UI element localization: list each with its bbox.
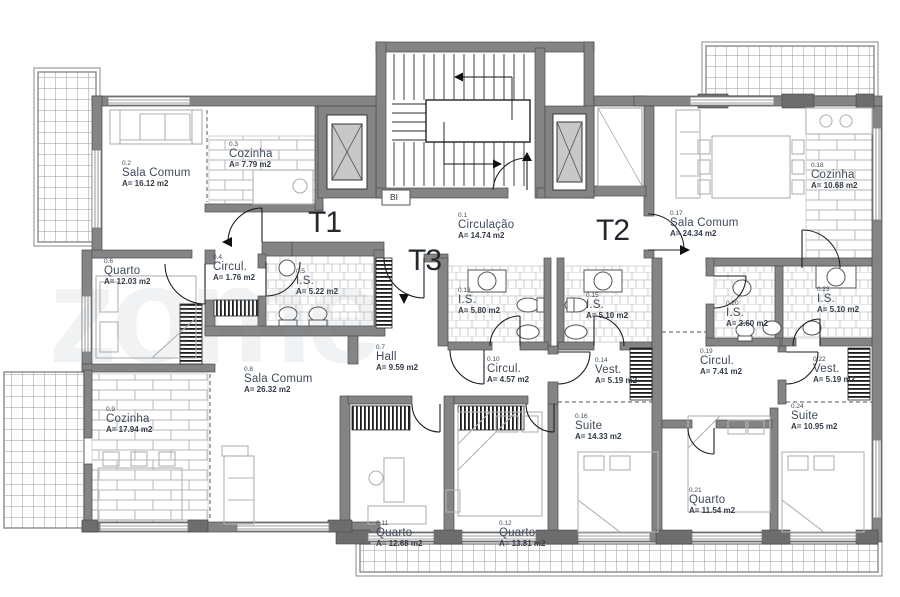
floor-plan: T1 T2 T3 BI 0.1 Circulação A= 14.74 m2 0… xyxy=(0,0,900,597)
room-number: 0.12 xyxy=(499,520,545,527)
room-number: 0.21 xyxy=(689,487,735,494)
room-area: A= 26.32 m2 xyxy=(244,386,312,395)
apartment-label-t3: T3 xyxy=(408,244,441,278)
room-area: A= 5.10 m2 xyxy=(817,306,859,315)
window xyxy=(100,523,188,531)
room-area: A= 7.79 m2 xyxy=(229,161,273,170)
room-label-0-24: 0.24 Suite A= 10.95 m2 xyxy=(791,403,837,432)
wardrobe xyxy=(180,304,202,364)
arrow-t3 xyxy=(399,294,409,304)
room-label-0-14: 0.14 Vest. A= 5.19 m2 xyxy=(595,357,637,386)
room-label-0-19: 0.19 Circul. A= 7.41 m2 xyxy=(700,348,742,377)
door-t1-entry xyxy=(228,208,262,242)
window xyxy=(692,533,762,541)
room-area: A= 10.95 m2 xyxy=(791,423,837,432)
room-number: 0.23 xyxy=(817,286,859,293)
room-number: 0.8 xyxy=(244,366,312,373)
terrace-top-right xyxy=(706,46,874,96)
room-area: A= 4.57 m2 xyxy=(487,376,529,385)
window xyxy=(92,150,101,228)
room-label-0-12: 0.12 Quarto A= 13.81 m2 xyxy=(499,520,545,549)
room-area: A= 7.41 m2 xyxy=(700,368,742,377)
wardrobe xyxy=(214,300,258,316)
door-vest-0-14 xyxy=(558,352,590,384)
door-quarto-0-21 xyxy=(688,428,714,454)
shaft-void xyxy=(598,108,642,186)
room-number: 0.3 xyxy=(229,141,273,148)
room-number: 0.15 xyxy=(586,292,628,299)
room-label-0-1: 0.1 Circulação A= 14.74 m2 xyxy=(458,212,514,241)
bed-suite-0-16 xyxy=(578,452,658,532)
sofa-sala-0-17 xyxy=(676,110,700,198)
room-area: A= 13.81 m2 xyxy=(499,540,545,549)
room-label-0-11: 0.11 Quarto A= 12.68 m2 xyxy=(376,520,422,549)
elevator-right xyxy=(545,106,594,198)
room-number: 0.13 xyxy=(458,287,500,294)
room-number: 0.17 xyxy=(670,210,738,217)
room-area: A= 16.12 m2 xyxy=(122,180,190,189)
window xyxy=(873,440,881,518)
room-number: 0.19 xyxy=(700,348,742,355)
terrace-top-left xyxy=(38,72,96,242)
wardrobe xyxy=(352,406,410,430)
room-label-0-3: 0.3 Cozinha A= 7.79 m2 xyxy=(229,141,273,170)
room-area: A= 3.60 m2 xyxy=(726,320,768,329)
room-label-0-23: 0.23 I.S. A= 5.10 m2 xyxy=(817,286,859,315)
room-area: A= 5.19 m2 xyxy=(813,376,855,385)
stair-arrow-down xyxy=(493,160,502,169)
room-area: A= 24.34 m2 xyxy=(670,230,738,239)
arrow-t2 xyxy=(680,245,690,255)
window xyxy=(578,533,650,541)
room-number: 0.18 xyxy=(811,162,857,169)
room-number: 0.10 xyxy=(487,356,529,363)
room-area: A= 12.03 m2 xyxy=(104,278,150,287)
bed-suite-0-24 xyxy=(782,452,864,532)
room-area: A= 14.33 m2 xyxy=(575,433,621,442)
room-area: A= 5.80 m2 xyxy=(458,307,500,316)
window xyxy=(873,128,881,220)
kitchen-counter-0-3 xyxy=(253,170,313,204)
arrow-t1 xyxy=(222,237,232,247)
room-number: 0.6 xyxy=(104,258,150,265)
room-number: 0.11 xyxy=(376,520,422,527)
balcony-bottom xyxy=(360,544,878,572)
room-label-0-18: 0.18 Cozinha A= 10.68 m2 xyxy=(811,162,857,191)
room-number: 0.9 xyxy=(106,406,152,413)
room-area: A= 17.94 m2 xyxy=(106,426,152,435)
room-number: 0.14 xyxy=(595,357,637,364)
wardrobe xyxy=(376,258,392,328)
room-label-0-4: 0.4 Circul. A= 1.76 m2 xyxy=(213,254,255,283)
apartment-label-t2: T2 xyxy=(596,214,629,248)
bi-closet-label: BI xyxy=(390,192,398,202)
sofa-sala-0-2 xyxy=(110,110,202,144)
sofa-sala-0-8 xyxy=(222,446,254,524)
room-label-0-21: 0.21 Quarto A= 11.54 m2 xyxy=(689,487,735,516)
room-number: 0.22 xyxy=(813,356,855,363)
room-number: 0.16 xyxy=(575,413,621,420)
room-area: A= 12.68 m2 xyxy=(376,540,422,549)
staircase xyxy=(392,54,530,186)
arrow-stairs xyxy=(522,152,532,161)
terrace-bottom-left xyxy=(4,372,84,528)
room-area: A= 5.22 m2 xyxy=(296,288,338,297)
room-number: 0.20 xyxy=(726,300,768,307)
window xyxy=(790,533,856,541)
room-area: A= 14.74 m2 xyxy=(458,232,514,241)
stair-arrow-up xyxy=(454,73,463,82)
room-label-0-5: 0.5 I.S. A= 5.22 m2 xyxy=(296,268,338,297)
room-label-0-15: 0.15 I.S. A= 5.10 m2 xyxy=(586,292,628,321)
window xyxy=(108,97,190,105)
kitchen-counter-0-18 xyxy=(806,108,872,134)
window xyxy=(690,97,774,105)
door-quarto-0-11 xyxy=(412,404,440,432)
room-label-0-8: 0.8 Sala Comum A= 26.32 m2 xyxy=(244,366,312,395)
room-number: 0.5 xyxy=(296,268,338,275)
room-label-0-10: 0.10 Circul. A= 4.57 m2 xyxy=(487,356,529,385)
room-area: A= 11.54 m2 xyxy=(689,507,735,516)
room-label-0-20: 0.20 I.S. A= 3.60 m2 xyxy=(726,300,768,329)
room-area: A= 9.59 m2 xyxy=(376,364,418,373)
room-number: 0.2 xyxy=(122,160,190,167)
door-hall-circul-0-10 xyxy=(450,350,484,384)
room-label-0-22: 0.22 Vest. A= 5.19 m2 xyxy=(813,356,855,385)
kitchen-0-9-floor xyxy=(92,374,208,522)
room-area: A= 10.68 m2 xyxy=(811,182,857,191)
room-number: 0.7 xyxy=(376,344,418,351)
room-label-0-17: 0.17 Sala Comum A= 24.34 m2 xyxy=(670,210,738,239)
door-quarto-0-6 xyxy=(165,264,205,304)
room-label-0-7: 0.7 Hall A= 9.59 m2 xyxy=(376,344,418,373)
room-area: A= 5.19 m2 xyxy=(595,377,637,386)
room-label-0-6: 0.6 Quarto A= 12.03 m2 xyxy=(104,258,150,287)
desk-quarto-0-11 xyxy=(368,458,426,524)
room-area: A= 1.76 m2 xyxy=(213,274,255,283)
room-number: 0.1 xyxy=(458,212,514,219)
room-number: 0.4 xyxy=(213,254,255,261)
elevator-left xyxy=(318,106,376,198)
wardrobe xyxy=(458,406,524,430)
floor-plan-drawing xyxy=(0,0,900,597)
room-label-0-2: 0.2 Sala Comum A= 16.12 m2 xyxy=(122,160,190,189)
room-number: 0.24 xyxy=(791,403,837,410)
room-label-0-9: 0.9 Cozinha A= 17.94 m2 xyxy=(106,406,152,435)
room-label-0-13: 0.13 I.S. A= 5.80 m2 xyxy=(458,287,500,316)
window xyxy=(82,296,91,352)
room-label-0-16: 0.16 Suite A= 14.33 m2 xyxy=(575,413,621,442)
apartment-label-t1: T1 xyxy=(308,206,341,240)
room-area: A= 5.10 m2 xyxy=(586,312,628,321)
dining-table-sala-0-17 xyxy=(698,136,804,198)
